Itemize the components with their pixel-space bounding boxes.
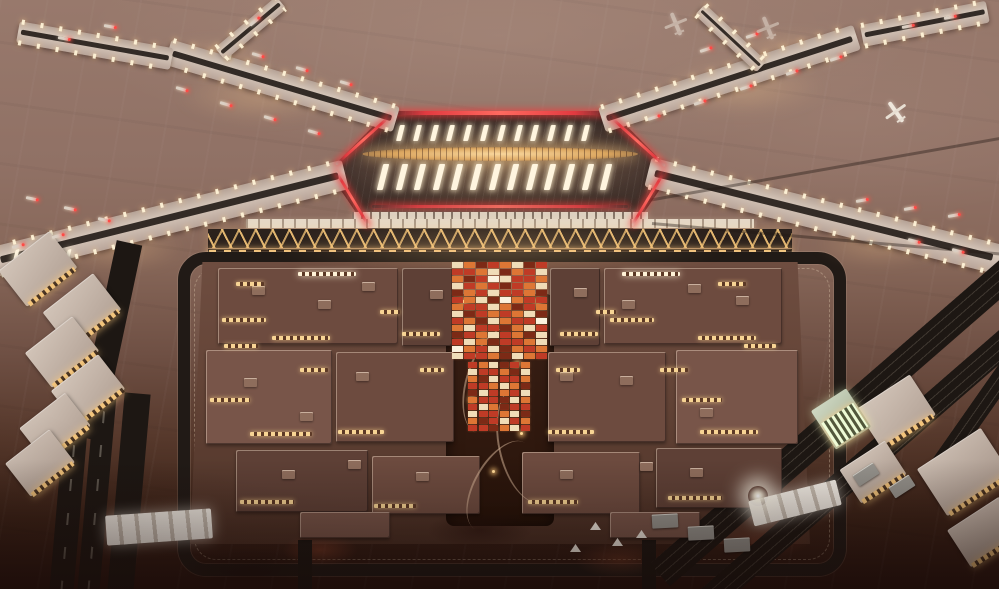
beacon-light	[317, 131, 321, 135]
rooftop-unit	[244, 378, 257, 387]
mosaic-cell	[524, 346, 535, 352]
mosaic-cell	[464, 304, 475, 310]
mosaic-cell	[464, 297, 475, 303]
mosaic-cell	[500, 418, 509, 424]
mosaic-cell	[521, 376, 530, 382]
aircraft-stand	[26, 196, 40, 202]
lit-floor-band	[883, 414, 935, 450]
mosaic-cell	[464, 325, 475, 331]
mosaic-cell	[536, 332, 547, 338]
aircraft-stand	[856, 198, 870, 203]
office-building	[917, 428, 999, 516]
window-strip	[660, 368, 688, 372]
mosaic-cell	[500, 346, 511, 352]
beacon-light	[958, 212, 961, 215]
window-strip	[718, 282, 746, 286]
beacon-light	[961, 250, 965, 254]
mosaic-cell	[524, 325, 535, 331]
mosaic-cell	[521, 390, 530, 396]
mosaic-cell	[479, 390, 488, 396]
mosaic-cell	[488, 304, 499, 310]
rooftop-unit	[690, 468, 703, 477]
mosaic-cell	[524, 311, 535, 317]
beacon-light	[261, 54, 265, 58]
complex-building	[548, 352, 666, 442]
rooftop-unit	[688, 284, 701, 293]
mosaic-cell	[489, 425, 498, 431]
mosaic-cell	[512, 318, 523, 324]
aircraft	[660, 8, 691, 39]
mosaic-cell	[500, 411, 509, 417]
mosaic-cell	[521, 404, 530, 410]
mosaic-cell	[489, 383, 498, 389]
mosaic-cell	[476, 339, 487, 345]
window-strip	[272, 336, 330, 340]
window-strip	[682, 398, 722, 402]
mosaic-cell	[464, 283, 475, 289]
complex-building	[336, 352, 454, 442]
mosaic-cell	[452, 283, 463, 289]
rooftop-unit	[620, 376, 633, 385]
mosaic-cell	[512, 311, 523, 317]
mosaic-cell	[488, 269, 499, 275]
mosaic-cell	[479, 404, 488, 410]
mosaic-cell	[479, 362, 488, 368]
mosaic-cell	[536, 304, 547, 310]
aircraft-stand	[904, 206, 918, 211]
window-strip	[338, 430, 384, 434]
mosaic-cell	[500, 332, 511, 338]
rooftop-unit	[560, 372, 573, 381]
window-strip	[240, 500, 294, 504]
mosaic-cell	[488, 297, 499, 303]
mosaic-cell	[536, 346, 547, 352]
mosaic-cell	[510, 369, 519, 375]
mosaic-cell	[476, 276, 487, 282]
mosaic-cell	[512, 283, 523, 289]
window-strip	[300, 368, 328, 372]
mosaic-cell	[510, 376, 519, 382]
mosaic-cell	[500, 390, 509, 396]
window-strip	[610, 318, 654, 322]
beacon-light	[305, 68, 309, 72]
beacon-light	[839, 55, 843, 59]
mosaic-cell	[468, 369, 477, 375]
mosaic-cell	[479, 383, 488, 389]
mosaic-cell	[524, 290, 535, 296]
mosaic-cell	[452, 325, 463, 331]
mosaic-cell	[488, 318, 499, 324]
mosaic-cell	[464, 290, 475, 296]
mosaic-cell	[452, 339, 463, 345]
mosaic-cell	[452, 332, 463, 338]
window-strip	[622, 272, 680, 276]
mosaic-cell	[500, 362, 509, 368]
mosaic-cell	[500, 304, 511, 310]
construction-shed	[724, 537, 751, 552]
mosaic-cell	[500, 262, 511, 268]
mosaic-cell	[488, 339, 499, 345]
beacon-light	[953, 14, 957, 18]
pier-concourse	[860, 1, 990, 47]
mosaic-cell	[500, 318, 511, 324]
rooftop-unit	[622, 300, 635, 309]
beacon-light	[911, 23, 915, 27]
mosaic-cell	[476, 346, 487, 352]
beacon-light	[185, 88, 189, 92]
mosaic-cell	[500, 397, 509, 403]
beacon-light	[21, 242, 25, 246]
mosaic-cell	[521, 425, 530, 431]
tensile-canopy	[105, 508, 213, 545]
rooftop-unit	[300, 412, 313, 421]
mosaic-cell	[479, 425, 488, 431]
window-strip	[420, 368, 444, 372]
aerial-airport-photo	[0, 0, 999, 589]
beacon-light	[229, 103, 233, 107]
construction-tent	[612, 538, 623, 546]
beacon-light	[795, 69, 799, 73]
mosaic-cell	[476, 290, 487, 296]
mosaic-cell	[489, 397, 498, 403]
aircraft-stand	[700, 46, 714, 53]
complex-building	[206, 350, 332, 444]
mosaic-cell	[500, 290, 511, 296]
beacon-light	[273, 117, 277, 121]
window-strip	[224, 344, 258, 348]
mosaic-cell	[500, 339, 511, 345]
mosaic-cell	[500, 376, 509, 382]
mosaic-cell	[464, 311, 475, 317]
rooftop-unit	[430, 290, 443, 299]
mosaic-cell	[512, 262, 523, 268]
mosaic-cell	[464, 353, 475, 359]
beacon-light	[36, 198, 40, 202]
mosaic-cell	[500, 404, 509, 410]
rooftop-unit	[348, 460, 361, 469]
mosaic-cell	[489, 376, 498, 382]
mosaic-cell	[489, 404, 498, 410]
mosaic-cell	[479, 411, 488, 417]
window-strip	[222, 318, 266, 322]
mosaic-cell	[536, 276, 547, 282]
beacon-light	[74, 208, 78, 212]
mosaic-cell	[479, 376, 488, 382]
generated-layer	[0, 0, 999, 589]
rooftop-unit	[362, 282, 375, 291]
window-strip	[700, 430, 758, 434]
mosaic-cell	[476, 325, 487, 331]
rooftop-unit	[700, 408, 713, 417]
mosaic-cell	[488, 353, 499, 359]
mosaic-cell	[521, 418, 530, 424]
mosaic-cell	[536, 318, 547, 324]
mosaic-cell	[524, 276, 535, 282]
mosaic-cell	[464, 332, 475, 338]
mosaic-cell	[488, 346, 499, 352]
mosaic-cell	[476, 297, 487, 303]
mosaic-cell	[476, 318, 487, 324]
beacon-light	[657, 114, 661, 118]
mosaic-cell	[536, 311, 547, 317]
mosaic-cell	[479, 397, 488, 403]
mosaic-cell	[512, 353, 523, 359]
mosaic-cell	[524, 262, 535, 268]
window-strip	[596, 310, 616, 314]
mosaic-cell	[521, 383, 530, 389]
mosaic-cell	[489, 390, 498, 396]
mosaic-cell	[468, 397, 477, 403]
mosaic-cell	[468, 411, 477, 417]
mosaic-cell	[524, 269, 535, 275]
mosaic-cell	[488, 276, 499, 282]
mosaic-cell	[464, 318, 475, 324]
rooftop-unit	[736, 296, 749, 305]
window-strip	[560, 332, 598, 336]
aircraft-stand	[948, 213, 962, 218]
mosaic-cell	[500, 383, 509, 389]
mosaic-cell	[468, 362, 477, 368]
mosaic-cell	[512, 304, 523, 310]
mosaic-cell	[468, 404, 477, 410]
mosaic-cell	[521, 411, 530, 417]
mosaic-cell	[452, 297, 463, 303]
rooftop-unit	[356, 372, 369, 381]
rooftop-unit	[416, 472, 429, 481]
mosaic-cell	[452, 304, 463, 310]
rooftop-unit	[560, 470, 573, 479]
mosaic-cell	[512, 297, 523, 303]
mosaic-cell	[479, 369, 488, 375]
mosaic-cell	[500, 325, 511, 331]
mosaic-cell	[512, 339, 523, 345]
mosaic-cell	[524, 304, 535, 310]
mosaic-cell	[510, 383, 519, 389]
beacon-light	[114, 25, 117, 28]
beacon-light	[914, 205, 917, 208]
mosaic-cell	[489, 418, 498, 424]
complex-building	[300, 512, 390, 538]
mosaic-cell	[512, 346, 523, 352]
rooftop-unit	[318, 300, 331, 309]
mosaic-cell	[489, 411, 498, 417]
mosaic-cell	[524, 318, 535, 324]
mosaic-cell	[468, 425, 477, 431]
window-strip	[250, 432, 312, 436]
window-strip	[374, 504, 416, 508]
mosaic-cell	[512, 332, 523, 338]
beacon-light	[68, 37, 71, 40]
mosaic-cell	[536, 297, 547, 303]
mosaic-cell	[512, 269, 523, 275]
mosaic-cell	[524, 332, 535, 338]
mosaic-cell	[452, 290, 463, 296]
mosaic-cell	[476, 332, 487, 338]
courtyard-lamp	[520, 432, 523, 435]
mosaic-cell	[536, 353, 547, 359]
mosaic-cell	[468, 418, 477, 424]
mosaic-cell	[536, 290, 547, 296]
lit-floor-band	[971, 532, 999, 567]
complex-building	[218, 268, 398, 344]
beacon-light	[61, 232, 65, 236]
mosaic-cell	[510, 397, 519, 403]
mosaic-cell	[468, 376, 477, 382]
mosaic-cell	[510, 404, 519, 410]
window-strip	[744, 344, 776, 348]
window-strip	[698, 336, 756, 340]
mosaic-cell	[476, 283, 487, 289]
mosaic-cell	[500, 283, 511, 289]
mosaic-cell	[452, 269, 463, 275]
mosaic-cell	[488, 290, 499, 296]
aircraft	[879, 95, 912, 128]
mosaic-cell	[488, 311, 499, 317]
mosaic-cell	[476, 269, 487, 275]
mosaic-cell	[479, 418, 488, 424]
mosaic-cell	[521, 397, 530, 403]
mosaic-cell	[452, 353, 463, 359]
mosaic-cell	[500, 425, 509, 431]
beacon-light	[108, 219, 112, 223]
construction-shed	[688, 525, 715, 540]
mosaic-cell	[488, 325, 499, 331]
mosaic-cell	[500, 276, 511, 282]
courtyard-lamp	[492, 470, 495, 473]
beacon-light	[866, 197, 869, 200]
mosaic-cell	[452, 311, 463, 317]
aircraft-stand	[308, 129, 322, 136]
mosaic-cell	[464, 262, 475, 268]
mosaic-cell	[476, 311, 487, 317]
floodlight	[748, 486, 768, 506]
beacon-light	[703, 99, 707, 103]
mosaic-cell	[464, 339, 475, 345]
mosaic-cell	[468, 383, 477, 389]
mosaic-cell	[536, 269, 547, 275]
mosaic-cell	[521, 362, 530, 368]
mosaic-cell	[510, 425, 519, 431]
rooftop-unit	[640, 462, 653, 471]
mosaic-cell	[500, 269, 511, 275]
beacon-light	[349, 82, 353, 86]
mosaic-cell	[524, 339, 535, 345]
mosaic-cell	[524, 353, 535, 359]
aircraft-stand	[64, 206, 78, 212]
mosaic-cell	[512, 290, 523, 296]
mosaic-cell	[536, 283, 547, 289]
mosaic-cell	[452, 318, 463, 324]
mosaic-cell	[510, 418, 519, 424]
rooftop-unit	[252, 286, 265, 295]
mosaic-cell	[476, 262, 487, 268]
mosaic-cell	[536, 325, 547, 331]
window-strip	[210, 398, 250, 402]
window-strip	[402, 332, 440, 336]
construction-tent	[590, 522, 601, 530]
mosaic-cell	[521, 369, 530, 375]
beacon-light	[709, 46, 713, 50]
mosaic-cell	[489, 362, 498, 368]
construction-tent	[570, 544, 581, 552]
mosaic-cell	[468, 390, 477, 396]
mosaic-cell	[464, 346, 475, 352]
window-strip	[298, 272, 356, 276]
beacon-light	[749, 84, 753, 88]
window-strip	[380, 310, 400, 314]
mosaic-cell	[488, 332, 499, 338]
mosaic-cell	[512, 325, 523, 331]
window-strip	[668, 496, 722, 500]
mosaic-cell	[524, 297, 535, 303]
window-strip	[236, 282, 264, 286]
mosaic-cell	[476, 353, 487, 359]
mosaic-cell	[452, 262, 463, 268]
pier-concourse	[16, 21, 173, 70]
mosaic-cell	[500, 353, 511, 359]
mosaic-cell	[536, 339, 547, 345]
mosaic-cell	[500, 297, 511, 303]
construction-shed	[652, 513, 679, 528]
aircraft-stand	[104, 24, 118, 29]
mosaic-cell	[488, 262, 499, 268]
beacon-light	[917, 240, 921, 244]
mosaic-cell	[510, 390, 519, 396]
mosaic-cell	[464, 276, 475, 282]
mosaic-cell	[536, 262, 547, 268]
mosaic-cell	[510, 411, 519, 417]
mosaic-cell	[500, 311, 511, 317]
mosaic-cell	[464, 269, 475, 275]
mosaic-cell	[500, 369, 509, 375]
mosaic-cell	[488, 283, 499, 289]
rooftop-unit	[282, 470, 295, 479]
mosaic-cell	[489, 369, 498, 375]
mosaic-cell	[512, 276, 523, 282]
mosaic-cell	[476, 304, 487, 310]
mosaic-cell	[524, 283, 535, 289]
mosaic-cell	[510, 362, 519, 368]
mosaic-cell	[452, 346, 463, 352]
window-strip	[556, 368, 580, 372]
mosaic-cell	[452, 276, 463, 282]
rooftop-unit	[574, 288, 587, 297]
road	[298, 540, 312, 589]
